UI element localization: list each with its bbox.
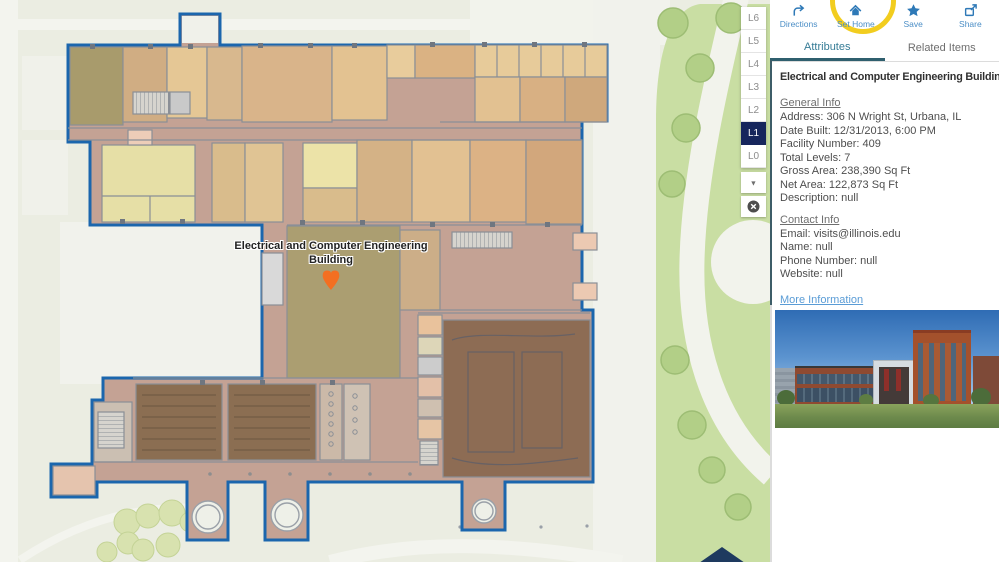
attr-description: Description: null	[780, 192, 991, 206]
attr-phone: Phone Number: null	[780, 255, 991, 269]
roof-court	[182, 16, 218, 43]
level-collapse-button[interactable]: ▼	[741, 172, 766, 193]
save-button[interactable]: Save	[885, 3, 942, 29]
level-L4[interactable]: L4	[741, 53, 766, 76]
level-selector: L6 L5 L4 L3 L2 L1 L0	[741, 7, 766, 168]
floor-plan[interactable]	[0, 0, 770, 562]
attributes-content: Electrical and Computer Engineering Buil…	[770, 62, 999, 308]
panel-toolbar: Directions Set Home Save Share	[770, 0, 999, 35]
close-icon	[747, 200, 760, 213]
info-panel: Directions Set Home Save Share	[770, 0, 999, 562]
map-nav-arrow-icon[interactable]	[699, 547, 745, 562]
attribute-title: Electrical and Computer Engineering Buil…	[780, 71, 991, 83]
photo-entrance-atrium	[873, 360, 915, 406]
chevron-down-icon: ▼	[750, 179, 757, 187]
attr-facility-number: Facility Number: 409	[780, 138, 991, 152]
share-label: Share	[959, 19, 982, 29]
photo-tower	[913, 330, 971, 409]
share-icon	[963, 3, 978, 18]
photo-lawn	[775, 404, 999, 428]
level-L1-selected[interactable]: L1	[741, 122, 766, 145]
attr-date-built: Date Built: 12/31/2013, 6:00 PM	[780, 125, 991, 139]
level-L2[interactable]: L2	[741, 99, 766, 122]
save-label: Save	[903, 19, 922, 29]
panel-tabs: Attributes Related Items	[770, 35, 999, 62]
attr-total-levels: Total Levels: 7	[780, 152, 991, 166]
panel-footer-space	[770, 428, 999, 562]
campus-map-app: Electrical and Computer Engineering Buil…	[0, 0, 999, 562]
attr-address: Address: 306 N Wright St, Urbana, IL	[780, 111, 991, 125]
level-L0[interactable]: L0	[741, 145, 766, 168]
share-button[interactable]: Share	[942, 3, 999, 29]
level-L6[interactable]: L6	[741, 7, 766, 30]
level-L3[interactable]: L3	[741, 76, 766, 99]
level-close-button[interactable]	[741, 196, 766, 217]
star-icon	[906, 3, 921, 18]
set-home-button[interactable]: Set Home	[827, 3, 884, 29]
tab-related-items[interactable]: Related Items	[885, 35, 999, 61]
map-canvas[interactable]: Electrical and Computer Engineering Buil…	[0, 0, 770, 562]
attr-name: Name: null	[780, 241, 991, 255]
level-L5[interactable]: L5	[741, 30, 766, 53]
set-home-label: Set Home	[837, 19, 875, 29]
general-info-link[interactable]: General Info	[780, 97, 841, 109]
scrollbar-thumb[interactable]	[770, 60, 772, 305]
directions-arrow-icon	[791, 3, 806, 18]
home-icon	[848, 3, 863, 18]
panel-scrollbar[interactable]	[770, 60, 772, 562]
attr-net-area: Net Area: 122,873 Sq Ft	[780, 179, 991, 193]
tab-attributes[interactable]: Attributes	[770, 35, 885, 61]
directions-button[interactable]: Directions	[770, 3, 827, 29]
attr-email: Email: visits@illinois.edu	[780, 228, 991, 242]
building-map-label: Electrical and Computer Engineering Buil…	[215, 239, 447, 268]
attr-website: Website: null	[780, 268, 991, 282]
attr-gross-area: Gross Area: 238,390 Sq Ft	[780, 165, 991, 179]
more-information-link[interactable]: More Information	[780, 294, 863, 306]
directions-label: Directions	[780, 19, 818, 29]
contact-info-link[interactable]: Contact Info	[780, 214, 839, 226]
building-photo[interactable]	[775, 310, 999, 428]
location-pin-icon[interactable]	[322, 270, 340, 290]
